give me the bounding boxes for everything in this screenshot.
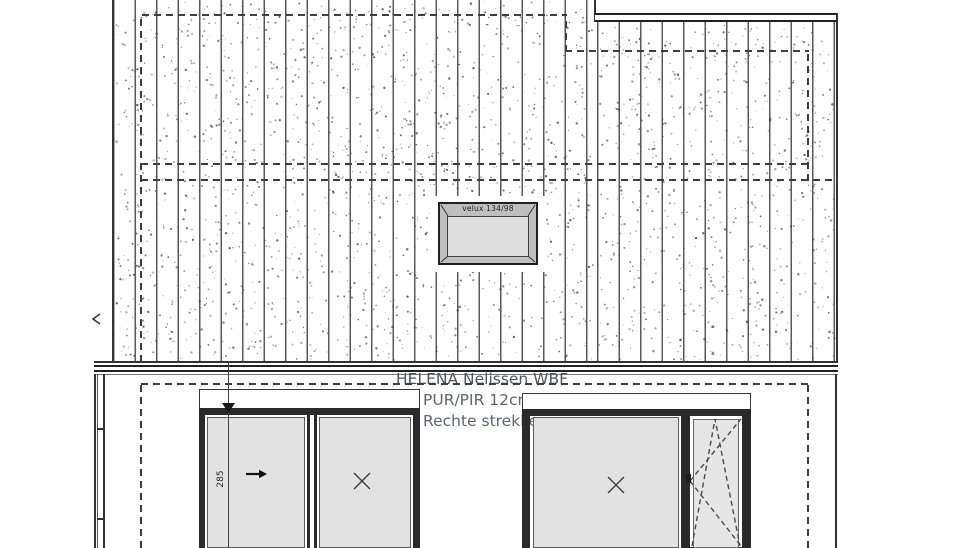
dimension-arrow-icon [222, 403, 235, 414]
window-left-divider-b [314, 408, 317, 548]
roof-dash-top-left [142, 14, 567, 16]
window-left-jamb-right [413, 408, 420, 548]
wall-right-line [835, 374, 838, 548]
roof-stipple-texture [0, 0, 972, 548]
fixed-pane-x-icon [606, 475, 626, 495]
note-header: HELENA Nelissen WBF [396, 371, 568, 388]
wall-left-tick-1 [97, 428, 104, 430]
dimension-label: 285 [215, 467, 227, 491]
wall-dash-left [140, 383, 142, 548]
window-right-head [522, 393, 751, 410]
skylight-label: velux 134/98 [438, 204, 538, 213]
roof-right-ridge-band [595, 13, 838, 22]
roof-dash-horizontal-2 [141, 179, 838, 181]
roof-dash-left [140, 14, 142, 362]
window-left-divider-a [307, 408, 310, 548]
eaves-line-mid1 [94, 365, 838, 367]
left-edge-arrow-mark [92, 313, 102, 325]
hinge-mark [686, 474, 691, 483]
wall-left-tick-2 [97, 518, 104, 520]
window-left-jamb-left [199, 408, 205, 548]
roof-dash-step [565, 14, 567, 52]
roof-dash-horizontal-1 [141, 163, 808, 165]
roof-dash-top-right [565, 50, 809, 52]
roof-left-edge [112, 0, 114, 362]
wall-left-inner-line [103, 374, 105, 548]
wall-left-mid-line [97, 374, 98, 548]
roof-dash-right [807, 50, 809, 181]
fixed-pane-x-icon [352, 471, 372, 491]
elevation-drawing: velux 134/98 HELENA Nelissen WBF PUR/PIR… [0, 0, 972, 548]
wall-dash-right [807, 383, 809, 548]
dimension-line [228, 362, 229, 548]
wall-left-outer-line [94, 374, 96, 548]
window-right-jamb-left [522, 409, 530, 548]
tilt-turn-symbol [686, 412, 746, 548]
wall-dash-top [141, 383, 809, 385]
eaves-line-top [94, 361, 838, 363]
note-insulation: PUR/PIR 12cm [423, 392, 533, 409]
slide-direction-arrow-icon [246, 468, 268, 480]
roof-right-edge [836, 13, 838, 362]
